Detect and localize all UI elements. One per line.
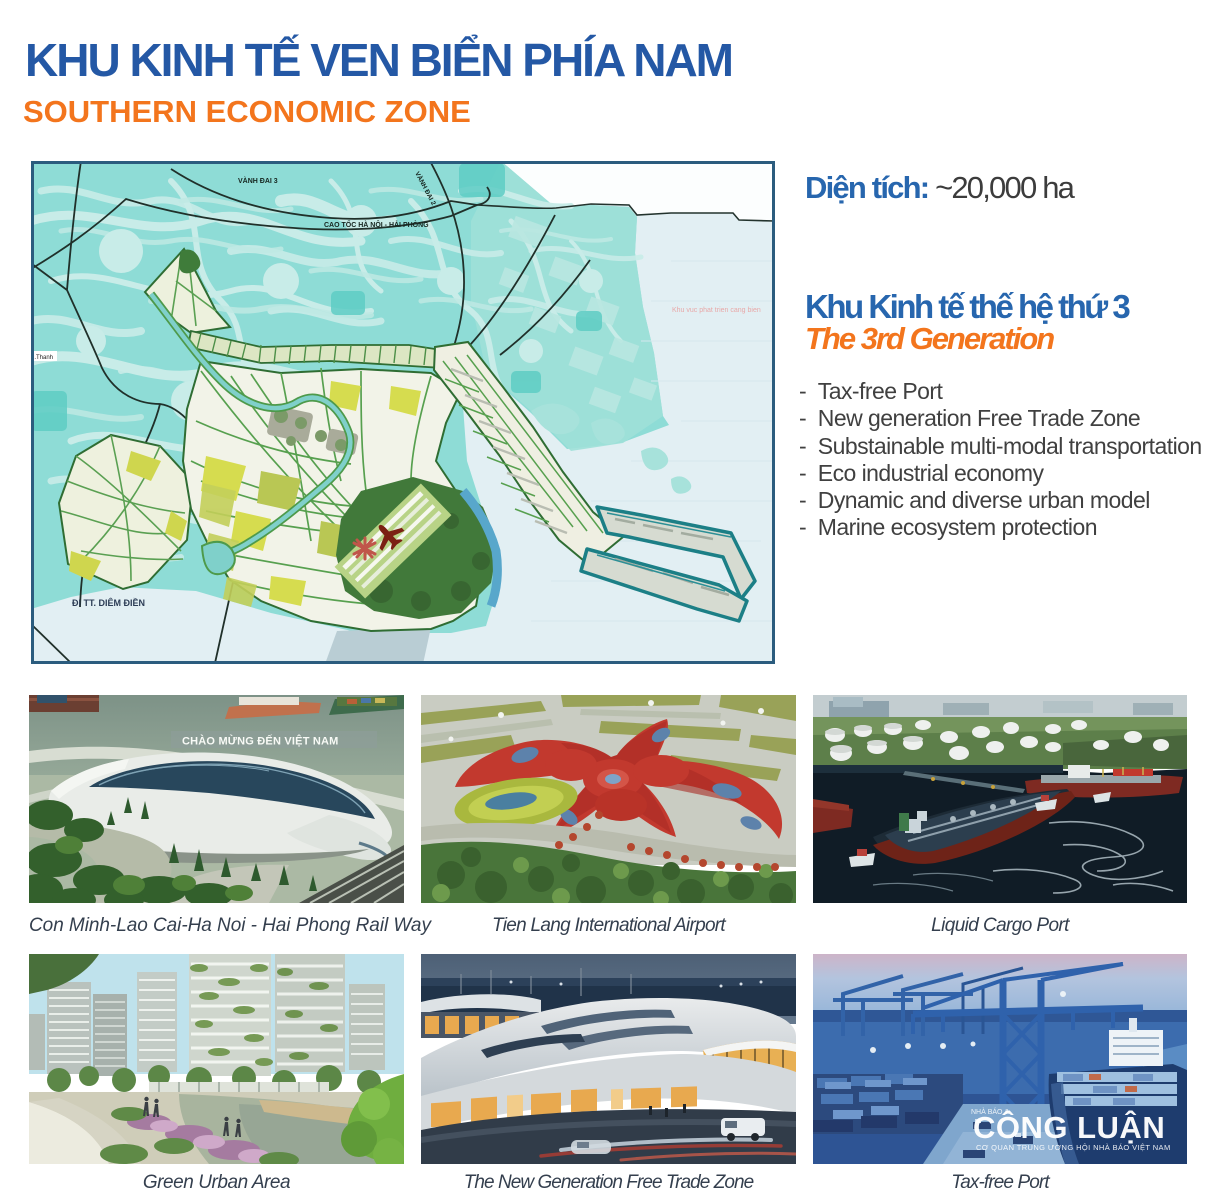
svg-text:Khu vuc phat trien cang bien: Khu vuc phat trien cang bien (672, 307, 761, 314)
svg-text:VÀNH ĐAI 3: VÀNH ĐAI 3 (238, 176, 278, 185)
svg-text:ĐI TT. DIÊM ĐIỀN: ĐI TT. DIÊM ĐIỀN (72, 597, 145, 608)
svg-text:CƠ QUAN TRUNG ƯƠNG HỘI NHÀ BÁO: CƠ QUAN TRUNG ƯƠNG HỘI NHÀ BÁO VIỆT NAM (976, 1143, 1171, 1152)
svg-text:CHÀO MỪNG ĐẾN VIỆT NAM: CHÀO MỪNG ĐẾN VIỆT NAM (182, 735, 339, 748)
svg-text:NHÀ BÁO &: NHÀ BÁO & (971, 1107, 1009, 1116)
svg-text:l.Thanh: l.Thanh (33, 355, 53, 361)
